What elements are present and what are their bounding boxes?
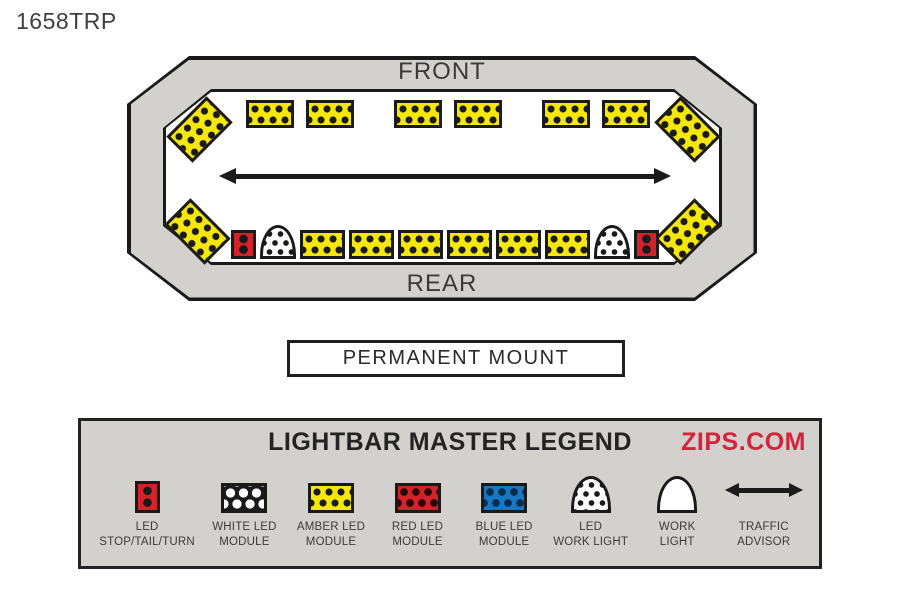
amber-led-module xyxy=(602,100,650,128)
front-module-row xyxy=(246,100,650,128)
legend-item-label: LIGHT xyxy=(659,535,696,550)
amber-led-module-icon xyxy=(308,483,354,513)
traffic-advisor-arrow xyxy=(219,168,671,184)
led-stop-tail-turn xyxy=(634,230,659,259)
legend-item-label: STOP/TAIL/TURN xyxy=(99,535,195,550)
arrow-shaft xyxy=(739,488,789,493)
amber-led-module xyxy=(454,100,502,128)
legend-items-row: LED STOP/TAIL/TURN WHITE LED MODULE xyxy=(93,465,807,549)
legend-item-label: MODULE xyxy=(475,535,532,550)
legend-item-red-led-module: RED LED MODULE xyxy=(374,465,461,549)
legend-item-label: WORK xyxy=(659,520,696,535)
legend-item-traffic-advisor: TRAFFIC ADVISOR xyxy=(720,465,807,549)
brand-zips-com: ZIPS.COM xyxy=(681,428,806,457)
rear-label: REAR xyxy=(127,270,757,298)
lightbar-diagram: FRONT REAR xyxy=(127,56,757,301)
legend-item-label: WORK LIGHT xyxy=(553,535,628,550)
led-work-light-icon xyxy=(571,476,611,513)
legend-item-label: MODULE xyxy=(392,535,443,550)
work-light-icon xyxy=(657,476,697,513)
led-stop-tail-turn xyxy=(231,230,256,259)
amber-led-module xyxy=(496,230,541,259)
arrowhead-right-icon xyxy=(789,483,803,497)
legend-item-amber-led-module: AMBER LED MODULE xyxy=(288,465,375,549)
led-work-light xyxy=(594,225,630,259)
legend-item-led-work-light: LED WORK LIGHT xyxy=(547,465,634,549)
front-label: FRONT xyxy=(127,58,757,86)
legend-item-label: AMBER LED xyxy=(297,520,365,535)
red-led-module-icon xyxy=(395,483,441,513)
amber-led-module xyxy=(349,230,394,259)
legend-item-label: LED xyxy=(99,520,195,535)
legend-item-label: WHITE LED xyxy=(212,520,276,535)
legend-item-label: LED xyxy=(553,520,628,535)
permanent-mount-label: PERMANENT MOUNT xyxy=(343,347,570,370)
led-work-light xyxy=(260,225,296,259)
permanent-mount-label-box: PERMANENT MOUNT xyxy=(287,340,625,377)
led-stop-tail-turn-icon xyxy=(135,481,160,513)
legend-item-label: TRAFFIC xyxy=(737,520,790,535)
amber-led-module xyxy=(398,230,443,259)
legend-item-label: ADVISOR xyxy=(737,535,790,550)
white-led-module-icon xyxy=(221,483,267,513)
legend-item-label: MODULE xyxy=(212,535,276,550)
arrow-shaft xyxy=(236,174,654,179)
legend-item-led-stop-tail-turn: LED STOP/TAIL/TURN xyxy=(93,465,201,549)
arrowhead-left-icon xyxy=(219,168,236,184)
amber-led-module xyxy=(545,230,590,259)
blue-led-module-icon xyxy=(481,483,527,513)
amber-led-module xyxy=(300,230,345,259)
legend-item-label: MODULE xyxy=(297,535,365,550)
traffic-advisor-icon xyxy=(725,483,803,497)
part-number: 1658TRP xyxy=(16,8,117,35)
legend-item-white-led-module: WHITE LED MODULE xyxy=(201,465,288,549)
arrowhead-right-icon xyxy=(654,168,671,184)
amber-led-module xyxy=(394,100,442,128)
legend-item-label: RED LED xyxy=(392,520,443,535)
legend-item-blue-led-module: BLUE LED MODULE xyxy=(461,465,548,549)
legend-item-work-light: WORK LIGHT xyxy=(634,465,721,549)
amber-led-module xyxy=(246,100,294,128)
amber-led-module xyxy=(306,100,354,128)
rear-module-row xyxy=(231,225,659,259)
legend-item-label: BLUE LED xyxy=(475,520,532,535)
diagram-canvas: 1658TRP FRONT REAR PERMANENT MOUNT LIGHT… xyxy=(0,0,900,600)
amber-led-module xyxy=(447,230,492,259)
legend-panel: LIGHTBAR MASTER LEGEND ZIPS.COM LED STOP… xyxy=(78,418,822,569)
arrowhead-left-icon xyxy=(725,483,739,497)
amber-led-module xyxy=(542,100,590,128)
